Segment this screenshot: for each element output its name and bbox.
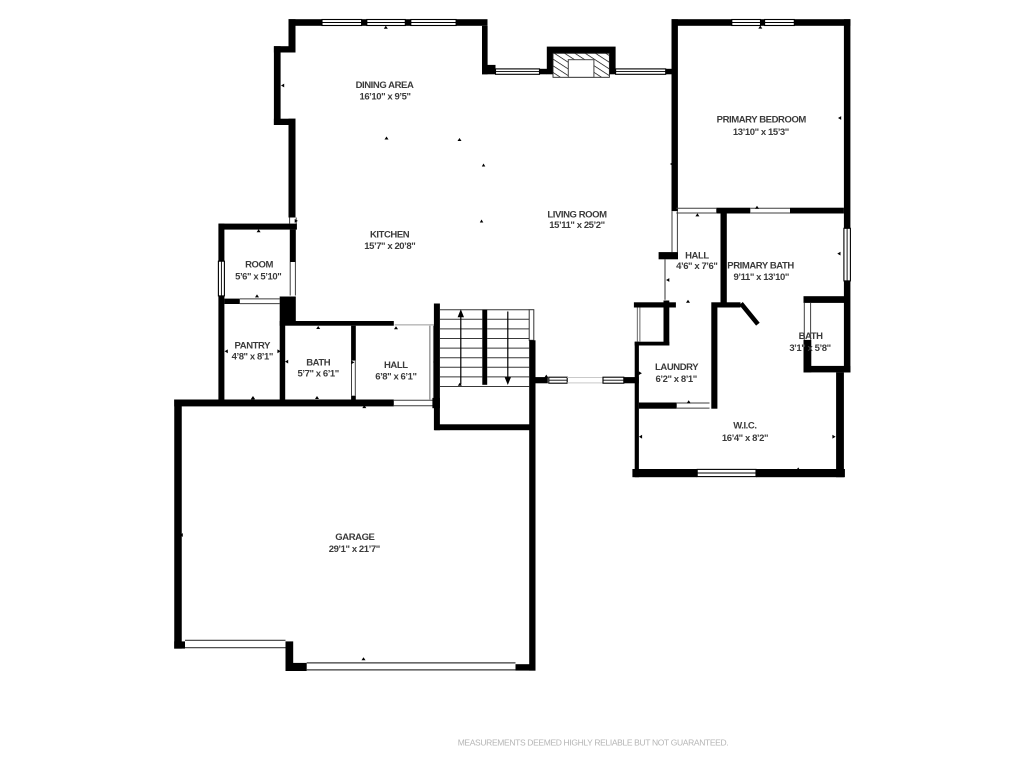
svg-text:ROOM: ROOM [245, 260, 273, 271]
svg-text:16’4" x 8’2": 16’4" x 8’2" [722, 433, 768, 444]
svg-text:13’10" x 15’3": 13’10" x 15’3" [733, 127, 789, 138]
svg-text:4’6" x 7’6": 4’6" x 7’6" [676, 261, 717, 272]
svg-text:15’7" x 20’8": 15’7" x 20’8" [364, 241, 415, 252]
svg-text:5’6" x 5’10": 5’6" x 5’10" [235, 272, 281, 283]
svg-text:5’7" x 6’1": 5’7" x 6’1" [298, 369, 339, 380]
svg-text:29’1" x 21’7": 29’1" x 21’7" [329, 544, 380, 555]
svg-text:15’11" x 25’2": 15’11" x 25’2" [549, 220, 604, 231]
svg-text:MEASUREMENTS DEEMED HIGHLY REL: MEASUREMENTS DEEMED HIGHLY RELIABLE BUT … [458, 738, 729, 748]
svg-text:KITCHEN: KITCHEN [370, 230, 410, 241]
svg-text:3’1" x 5’8": 3’1" x 5’8" [789, 343, 830, 354]
svg-text:BATH: BATH [799, 331, 824, 342]
svg-text:9’11" x 13’10": 9’11" x 13’10" [734, 272, 789, 283]
svg-text:W.I.C.: W.I.C. [733, 421, 756, 432]
svg-text:6’8" x 6’1": 6’8" x 6’1" [375, 372, 416, 383]
svg-text:DINING AREA: DINING AREA [356, 80, 414, 91]
svg-text:4’8" x 8’1": 4’8" x 8’1" [232, 352, 273, 363]
svg-text:PRIMARY BATH: PRIMARY BATH [727, 261, 794, 272]
svg-text:LIVING ROOM: LIVING ROOM [547, 210, 607, 221]
svg-text:LAUNDRY: LAUNDRY [655, 362, 699, 373]
svg-text:BATH: BATH [306, 357, 331, 368]
svg-text:16’10" x 9’5": 16’10" x 9’5" [359, 91, 410, 102]
svg-text:HALL: HALL [685, 251, 709, 262]
svg-text:6’2" x 8’1": 6’2" x 8’1" [656, 374, 697, 385]
svg-text:PRIMARY BEDROOM: PRIMARY BEDROOM [717, 115, 807, 126]
svg-text:GARAGE: GARAGE [335, 532, 374, 543]
svg-text:PANTRY: PANTRY [235, 340, 272, 351]
svg-text:HALL: HALL [384, 360, 408, 371]
